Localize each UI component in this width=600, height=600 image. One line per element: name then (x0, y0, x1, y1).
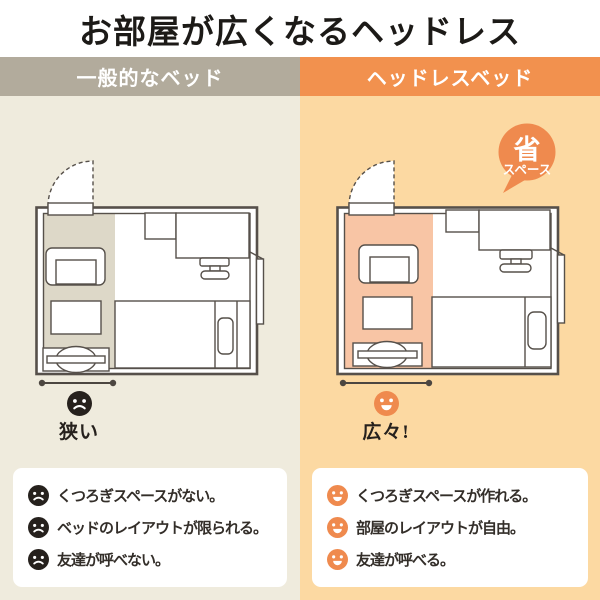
column-header-headless-bed: ヘッドレスベッド (300, 57, 600, 96)
list-item-text: 友達が呼べない。 (57, 549, 169, 570)
cons-list: くつろぎスペースがない。 ベッドのレイアウトが限られる。 友達が呼べない。 (13, 468, 287, 587)
verdict-block-spacious: 広々! (336, 391, 436, 444)
cramped-zone (44, 214, 115, 368)
list-item-text: ベッドのレイアウトが限られる。 (57, 517, 267, 538)
floor-plan-headless-bed: 省 スペース (300, 96, 600, 396)
happy-face-icon (327, 517, 348, 538)
panel-generic-bed: 狭い くつろぎスペースがない。 ベッドのレイアウトが限られる。 (0, 96, 300, 600)
sad-face-icon (28, 549, 49, 570)
list-item: ベッドのレイアウトが限られる。 (28, 517, 287, 538)
happy-face-icon (327, 549, 348, 570)
list-item: 友達が呼べる。 (327, 549, 588, 570)
badge-text-main: 省 (514, 135, 541, 165)
tv-board-icon (353, 342, 422, 368)
page-title: お部屋が広くなるヘッドレス (0, 0, 600, 57)
happy-face-icon (374, 391, 399, 416)
verdict-label: 狭い (29, 417, 129, 444)
sad-face-icon (67, 391, 92, 416)
list-item-text: くつろぎスペースがない。 (57, 485, 223, 506)
infographic-headless-bed: お部屋が広くなるヘッドレス 一般的なベッド ヘッドレスベッド (0, 0, 600, 600)
tv-board-icon (43, 347, 109, 373)
door-icon (349, 161, 394, 215)
badge-text-sub: スペース (503, 163, 552, 177)
list-item: 友達が呼べない。 (28, 549, 287, 570)
verdict-label: 広々! (336, 417, 436, 444)
pros-list: くつろぎスペースが作れる。 部屋のレイアウトが自由。 友達が呼べる。 (312, 468, 588, 587)
width-measure-line (340, 380, 432, 386)
verdict-block-narrow: 狭い (29, 391, 129, 444)
sad-face-icon (28, 485, 49, 506)
table-icon (363, 297, 412, 329)
happy-face-icon (327, 485, 348, 506)
list-item: 部屋のレイアウトが自由。 (327, 517, 588, 538)
table-icon (51, 301, 101, 334)
headless-bed-icon (432, 297, 551, 367)
floor-plan-generic-bed (0, 96, 300, 396)
list-item: くつろぎスペースがない。 (28, 485, 287, 506)
column-header-generic-bed: 一般的なベッド (0, 57, 300, 96)
bed-with-headboard-icon (115, 301, 250, 368)
width-measure-line (39, 380, 116, 386)
list-item-text: 友達が呼べる。 (356, 549, 454, 570)
list-item: くつろぎスペースが作れる。 (327, 485, 588, 506)
list-item-text: 部屋のレイアウトが自由。 (356, 517, 524, 538)
sofa-icon (359, 245, 418, 283)
space-saving-badge: 省 スペース (499, 124, 556, 194)
panel-headless-bed: 省 スペース 広々! くつろぎスペースが作れる。 (300, 96, 600, 600)
list-item-text: くつろぎスペースが作れる。 (356, 485, 536, 506)
sofa-icon (46, 248, 105, 285)
sad-face-icon (28, 517, 49, 538)
door-icon (48, 161, 93, 215)
